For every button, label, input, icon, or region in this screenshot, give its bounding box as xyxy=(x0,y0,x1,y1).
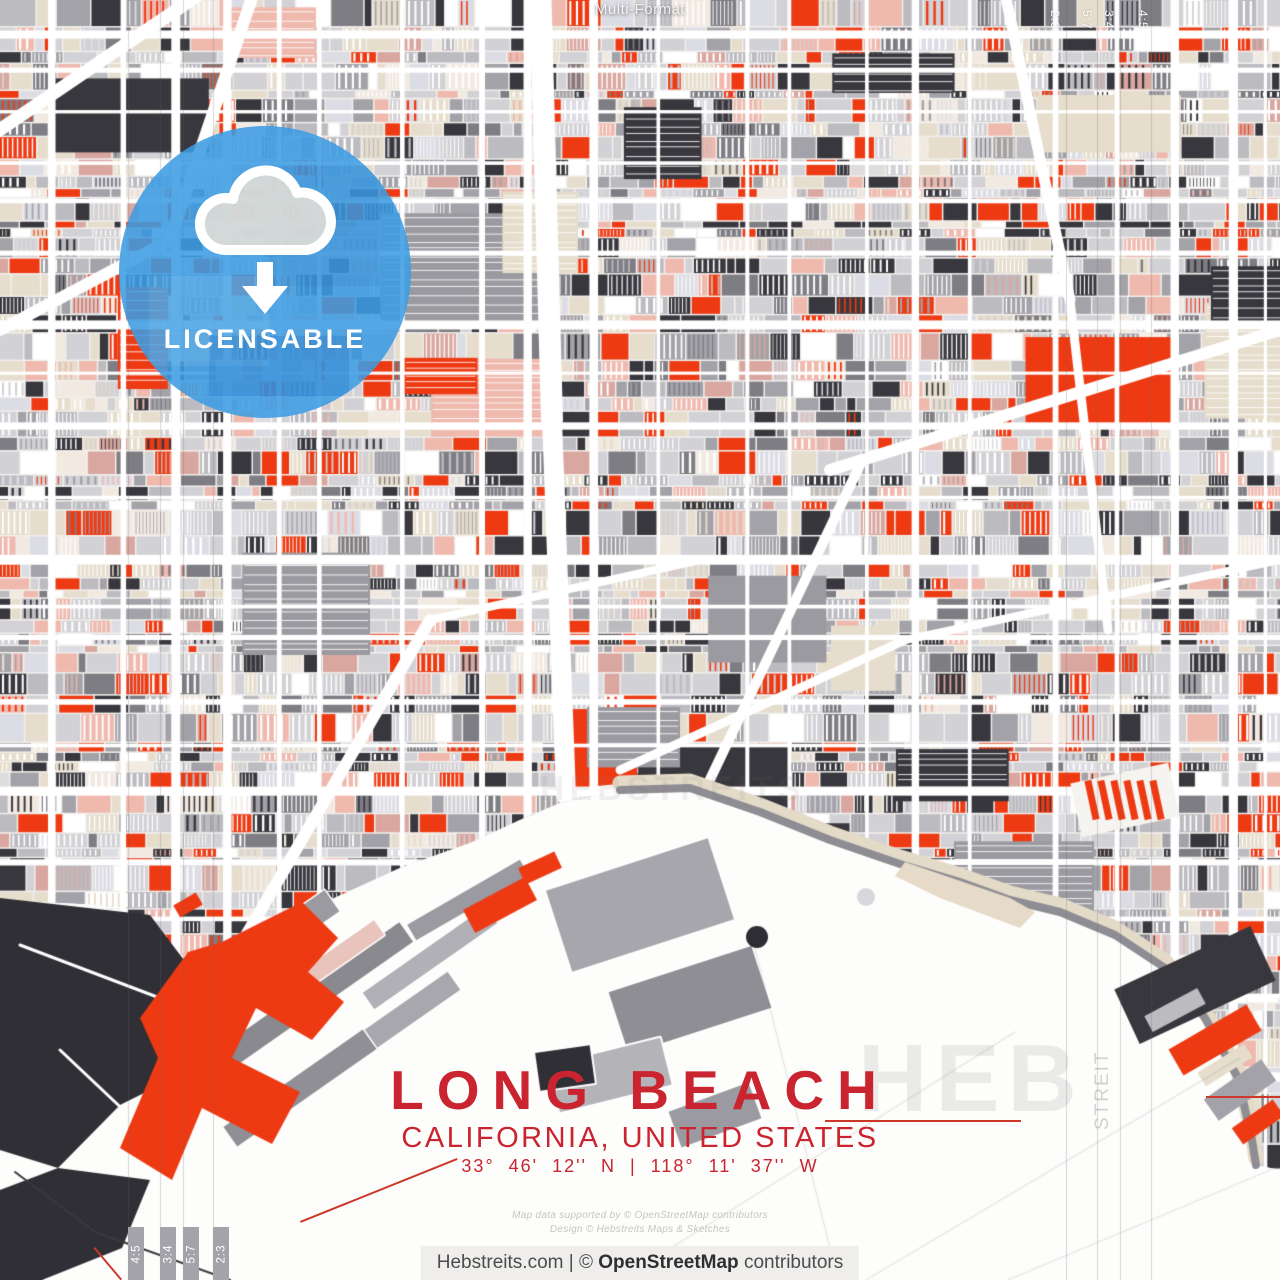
crop-format-label-top-3: 3:4 xyxy=(1102,10,1116,30)
watermark-center: HEBSTREITS xyxy=(540,770,805,809)
footer-separator: | xyxy=(569,1252,574,1273)
licensable-label: LICENSABLE xyxy=(164,324,367,355)
copyright-symbol: © xyxy=(579,1252,593,1273)
crop-format-label-top-4: 4:5 xyxy=(1136,10,1150,30)
crop-format-label-top-1: 2:3 xyxy=(1048,10,1062,30)
map-poster: Multi-Format 2:3 5:7 3:4 4:5 LICENSABLE … xyxy=(0,0,1280,1280)
crop-format-bar-57: 5:7 xyxy=(183,1227,199,1280)
licensable-badge: LICENSABLE xyxy=(119,126,411,418)
poster-title: LONG BEACH xyxy=(0,1058,1280,1122)
crop-format-label-top-2: 5:7 xyxy=(1080,10,1094,30)
site-name: Hebstreits.com xyxy=(437,1252,564,1273)
poster-subtitle: CALIFORNIA, UNITED STATES xyxy=(0,1122,1280,1155)
contributors-label: contributors xyxy=(744,1252,843,1273)
map-data-credit: Map data supported by © OpenStreetMap co… xyxy=(0,1210,1280,1221)
crop-format-bar-34: 3:4 xyxy=(160,1227,176,1280)
cloud-download-icon xyxy=(181,152,349,262)
poster-coordinates: 33° 46' 12'' N | 118° 11' 37'' W xyxy=(0,1156,1280,1177)
osm-brand: OpenStreetMap xyxy=(598,1252,738,1273)
crop-format-bar-45: 4:5 xyxy=(128,1227,144,1280)
download-arrow-icon xyxy=(235,262,295,316)
crop-format-bar-23: 2:3 xyxy=(213,1227,229,1280)
attribution-bar: Hebstreits.com | © OpenStreetMap contrib… xyxy=(421,1246,859,1280)
